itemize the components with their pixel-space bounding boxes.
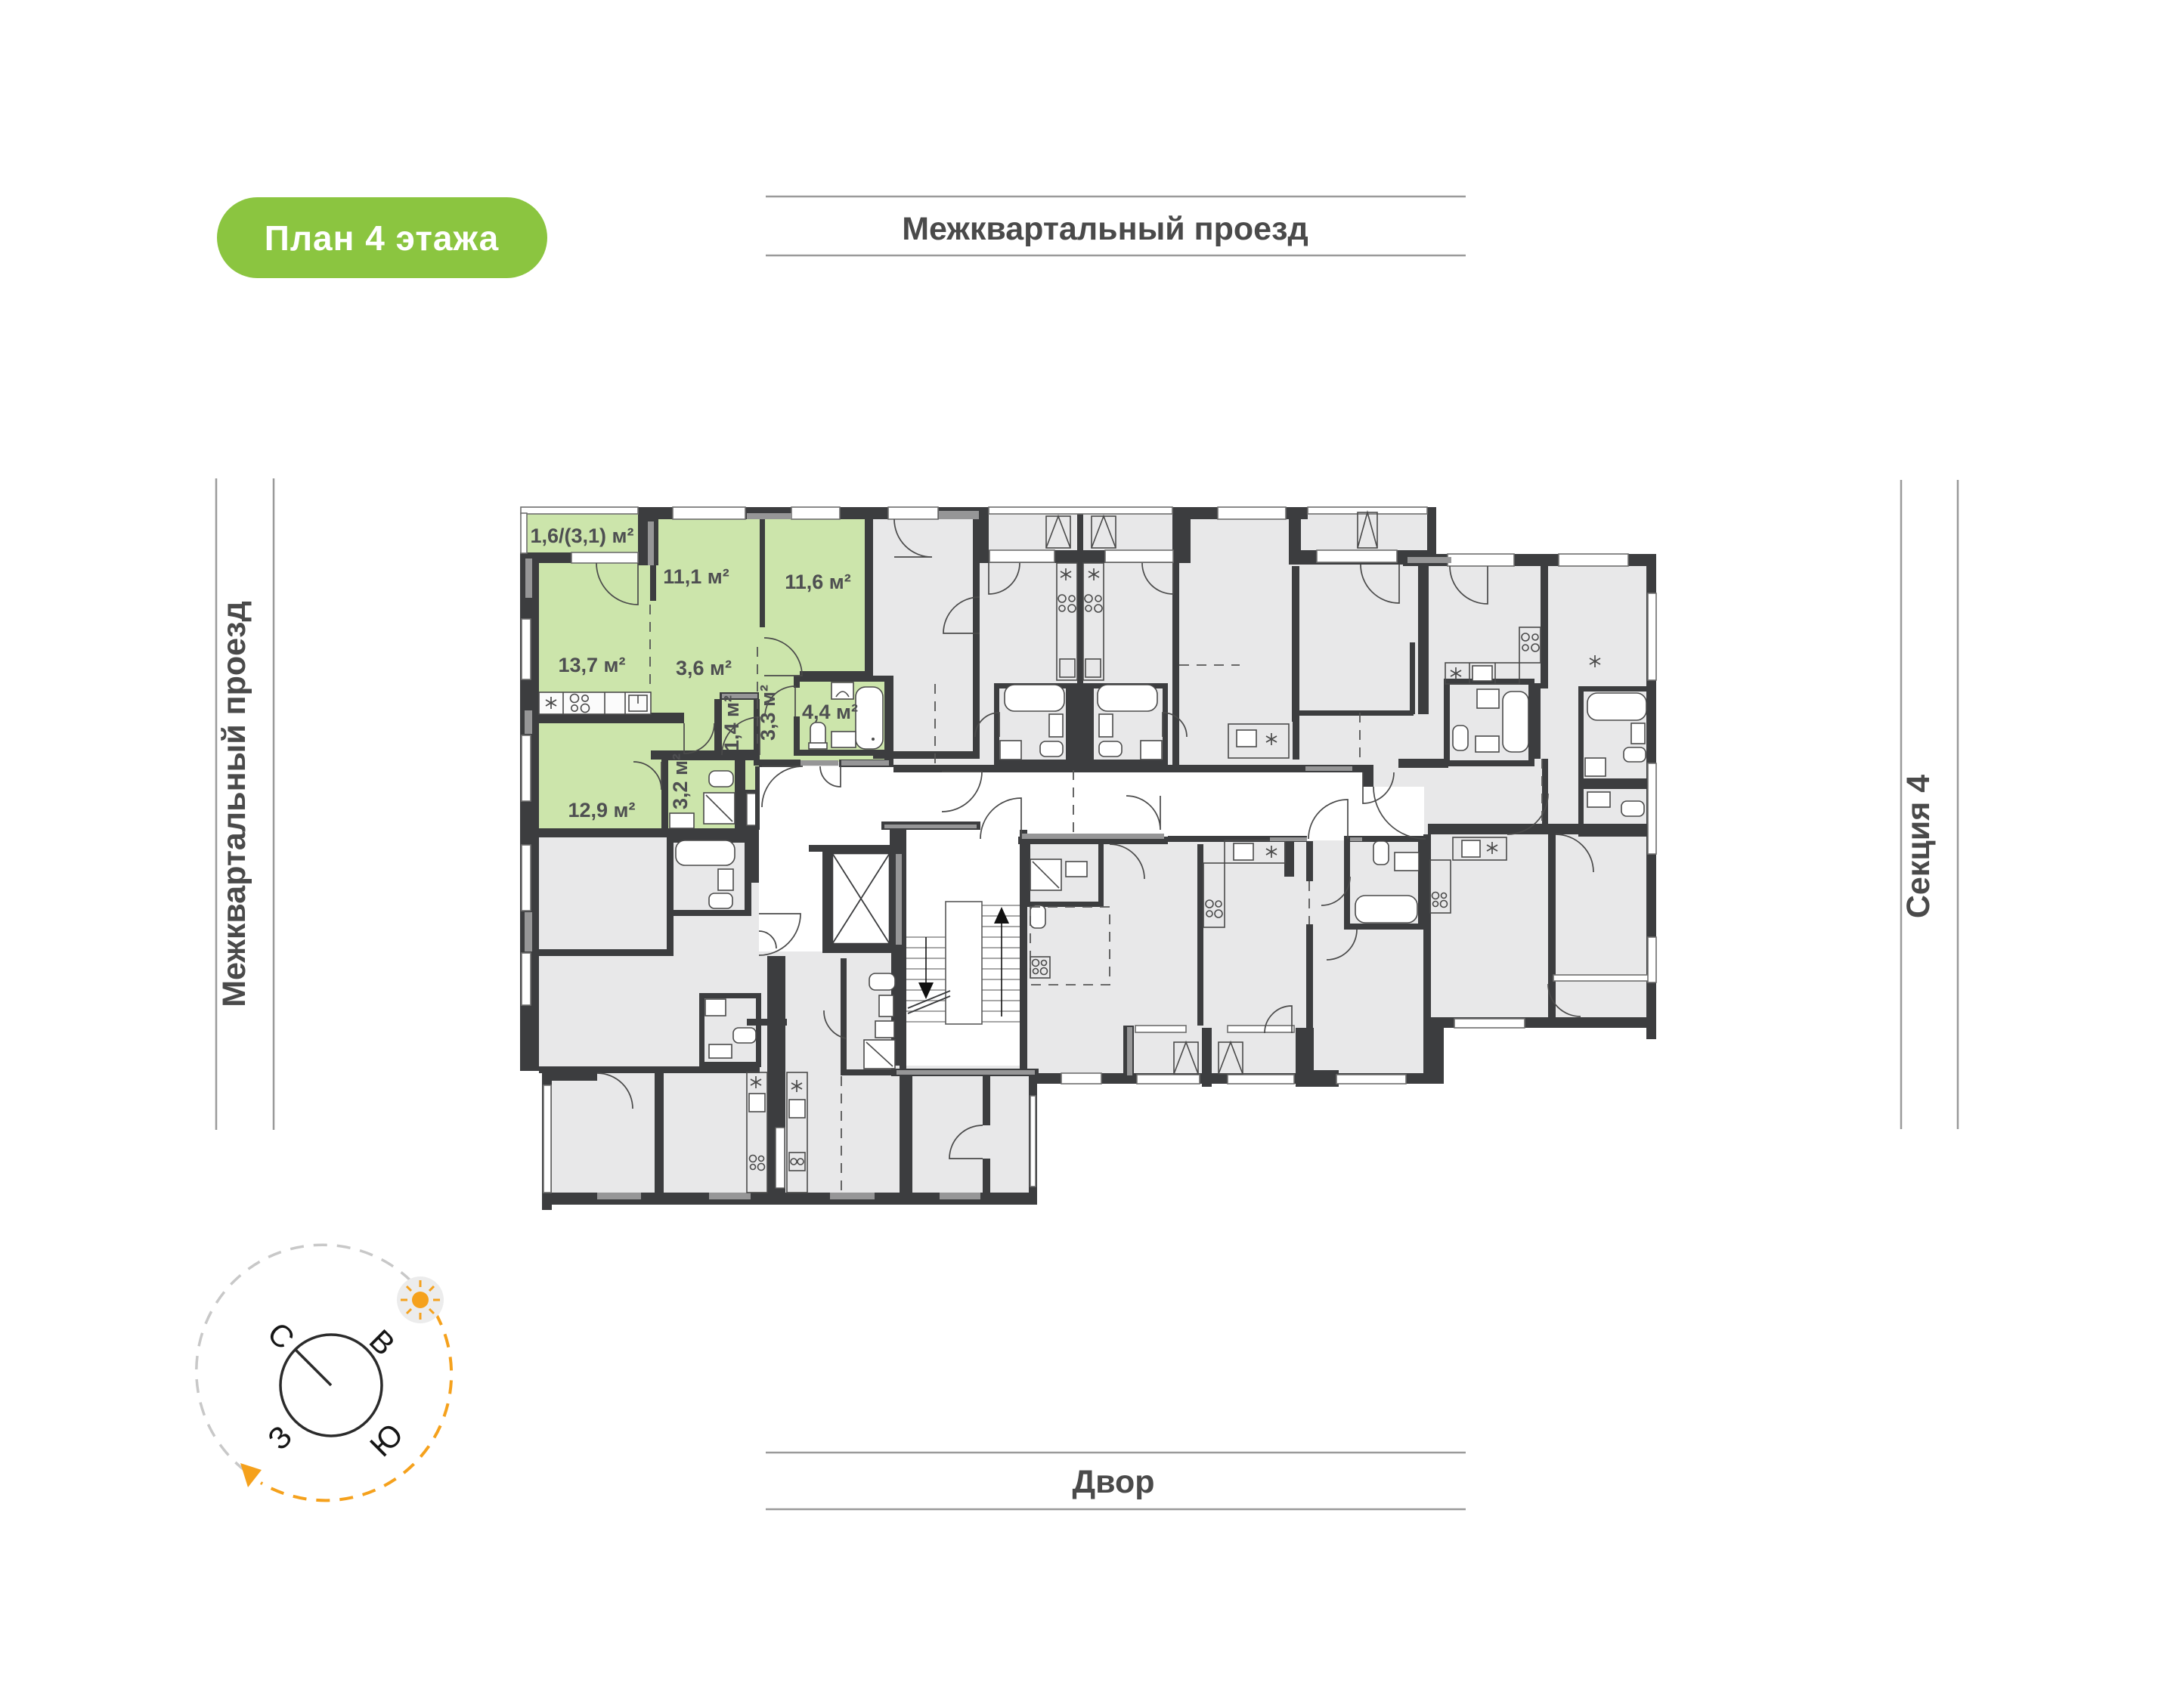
svg-text:Межквартальный проезд: Межквартальный проезд (902, 211, 1308, 247)
svg-text:3,6 м²: 3,6 м² (676, 657, 732, 679)
svg-text:11,1 м²: 11,1 м² (663, 565, 729, 588)
svg-text:Секция 4: Секция 4 (1900, 775, 1937, 918)
svg-text:3,3 м²: 3,3 м² (757, 685, 779, 741)
svg-text:1,6/(3,1) м²: 1,6/(3,1) м² (530, 524, 633, 547)
svg-text:12,9 м²: 12,9 м² (568, 799, 635, 822)
svg-text:Двор: Двор (1072, 1464, 1154, 1500)
svg-text:План 4 этажа: План 4 этажа (265, 218, 499, 258)
svg-text:3,2 м²: 3,2 м² (669, 753, 692, 809)
svg-text:Межквартальный проезд: Межквартальный проезд (216, 601, 252, 1007)
svg-text:1,4 м²: 1,4 м² (720, 695, 743, 751)
svg-text:11,6 м²: 11,6 м² (785, 571, 851, 593)
svg-text:4,4 м²: 4,4 м² (802, 701, 858, 723)
svg-text:13,7 м²: 13,7 м² (558, 654, 625, 676)
